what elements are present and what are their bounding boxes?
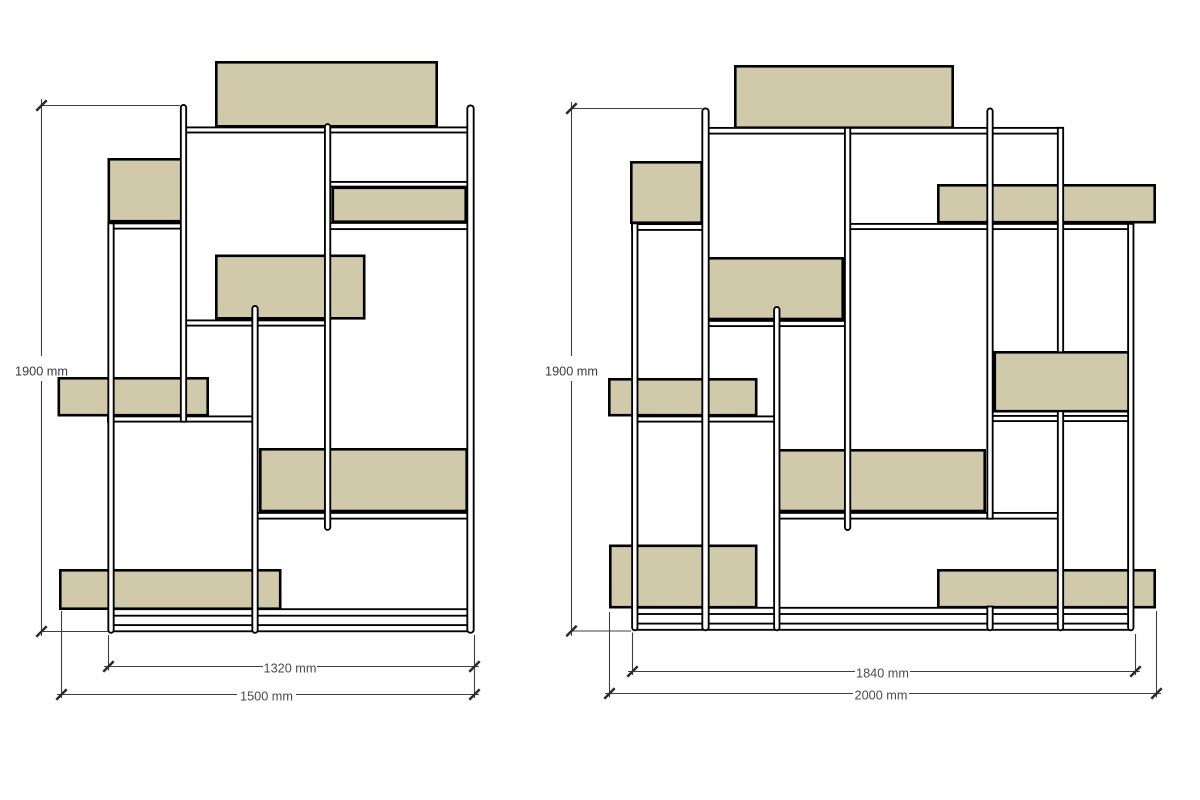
svg-text:2000 mm: 2000 mm [855,688,908,702]
svg-text:1840 mm: 1840 mm [856,666,909,680]
svg-text:1320 mm: 1320 mm [264,661,317,675]
svg-text:1900 mm: 1900 mm [545,364,598,378]
svg-text:1900 mm: 1900 mm [15,364,68,378]
svg-text:1500 mm: 1500 mm [240,689,293,703]
